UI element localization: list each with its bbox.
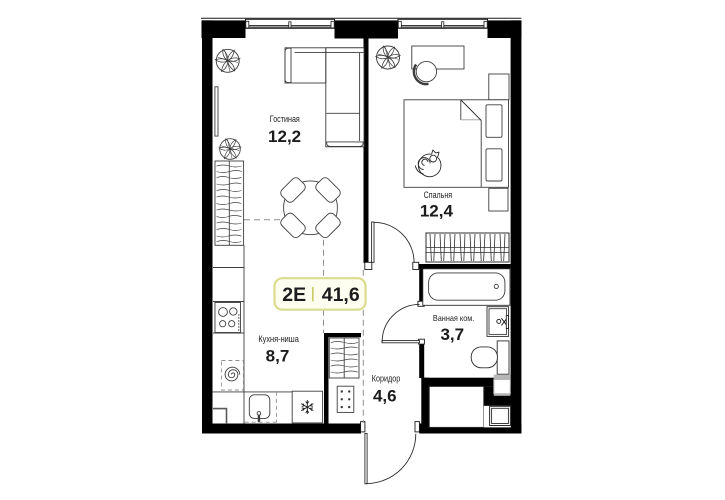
svg-text:2Е: 2Е — [282, 284, 306, 306]
svg-text:4,6: 4,6 — [373, 386, 397, 405]
svg-text:3,7: 3,7 — [440, 325, 464, 344]
svg-text:Коридор: Коридор — [372, 373, 401, 383]
svg-text:Кухня-ниша: Кухня-ниша — [258, 334, 299, 344]
svg-text:8,7: 8,7 — [266, 346, 290, 365]
svg-text:Спальня: Спальня — [424, 190, 453, 200]
svg-text:Ванная ком.: Ванная ком. — [433, 313, 475, 323]
svg-text:41,6: 41,6 — [322, 284, 360, 306]
svg-text:12,4: 12,4 — [420, 202, 454, 221]
svg-text:12,2: 12,2 — [268, 127, 301, 146]
svg-text:Гостиная: Гостиная — [270, 114, 300, 124]
